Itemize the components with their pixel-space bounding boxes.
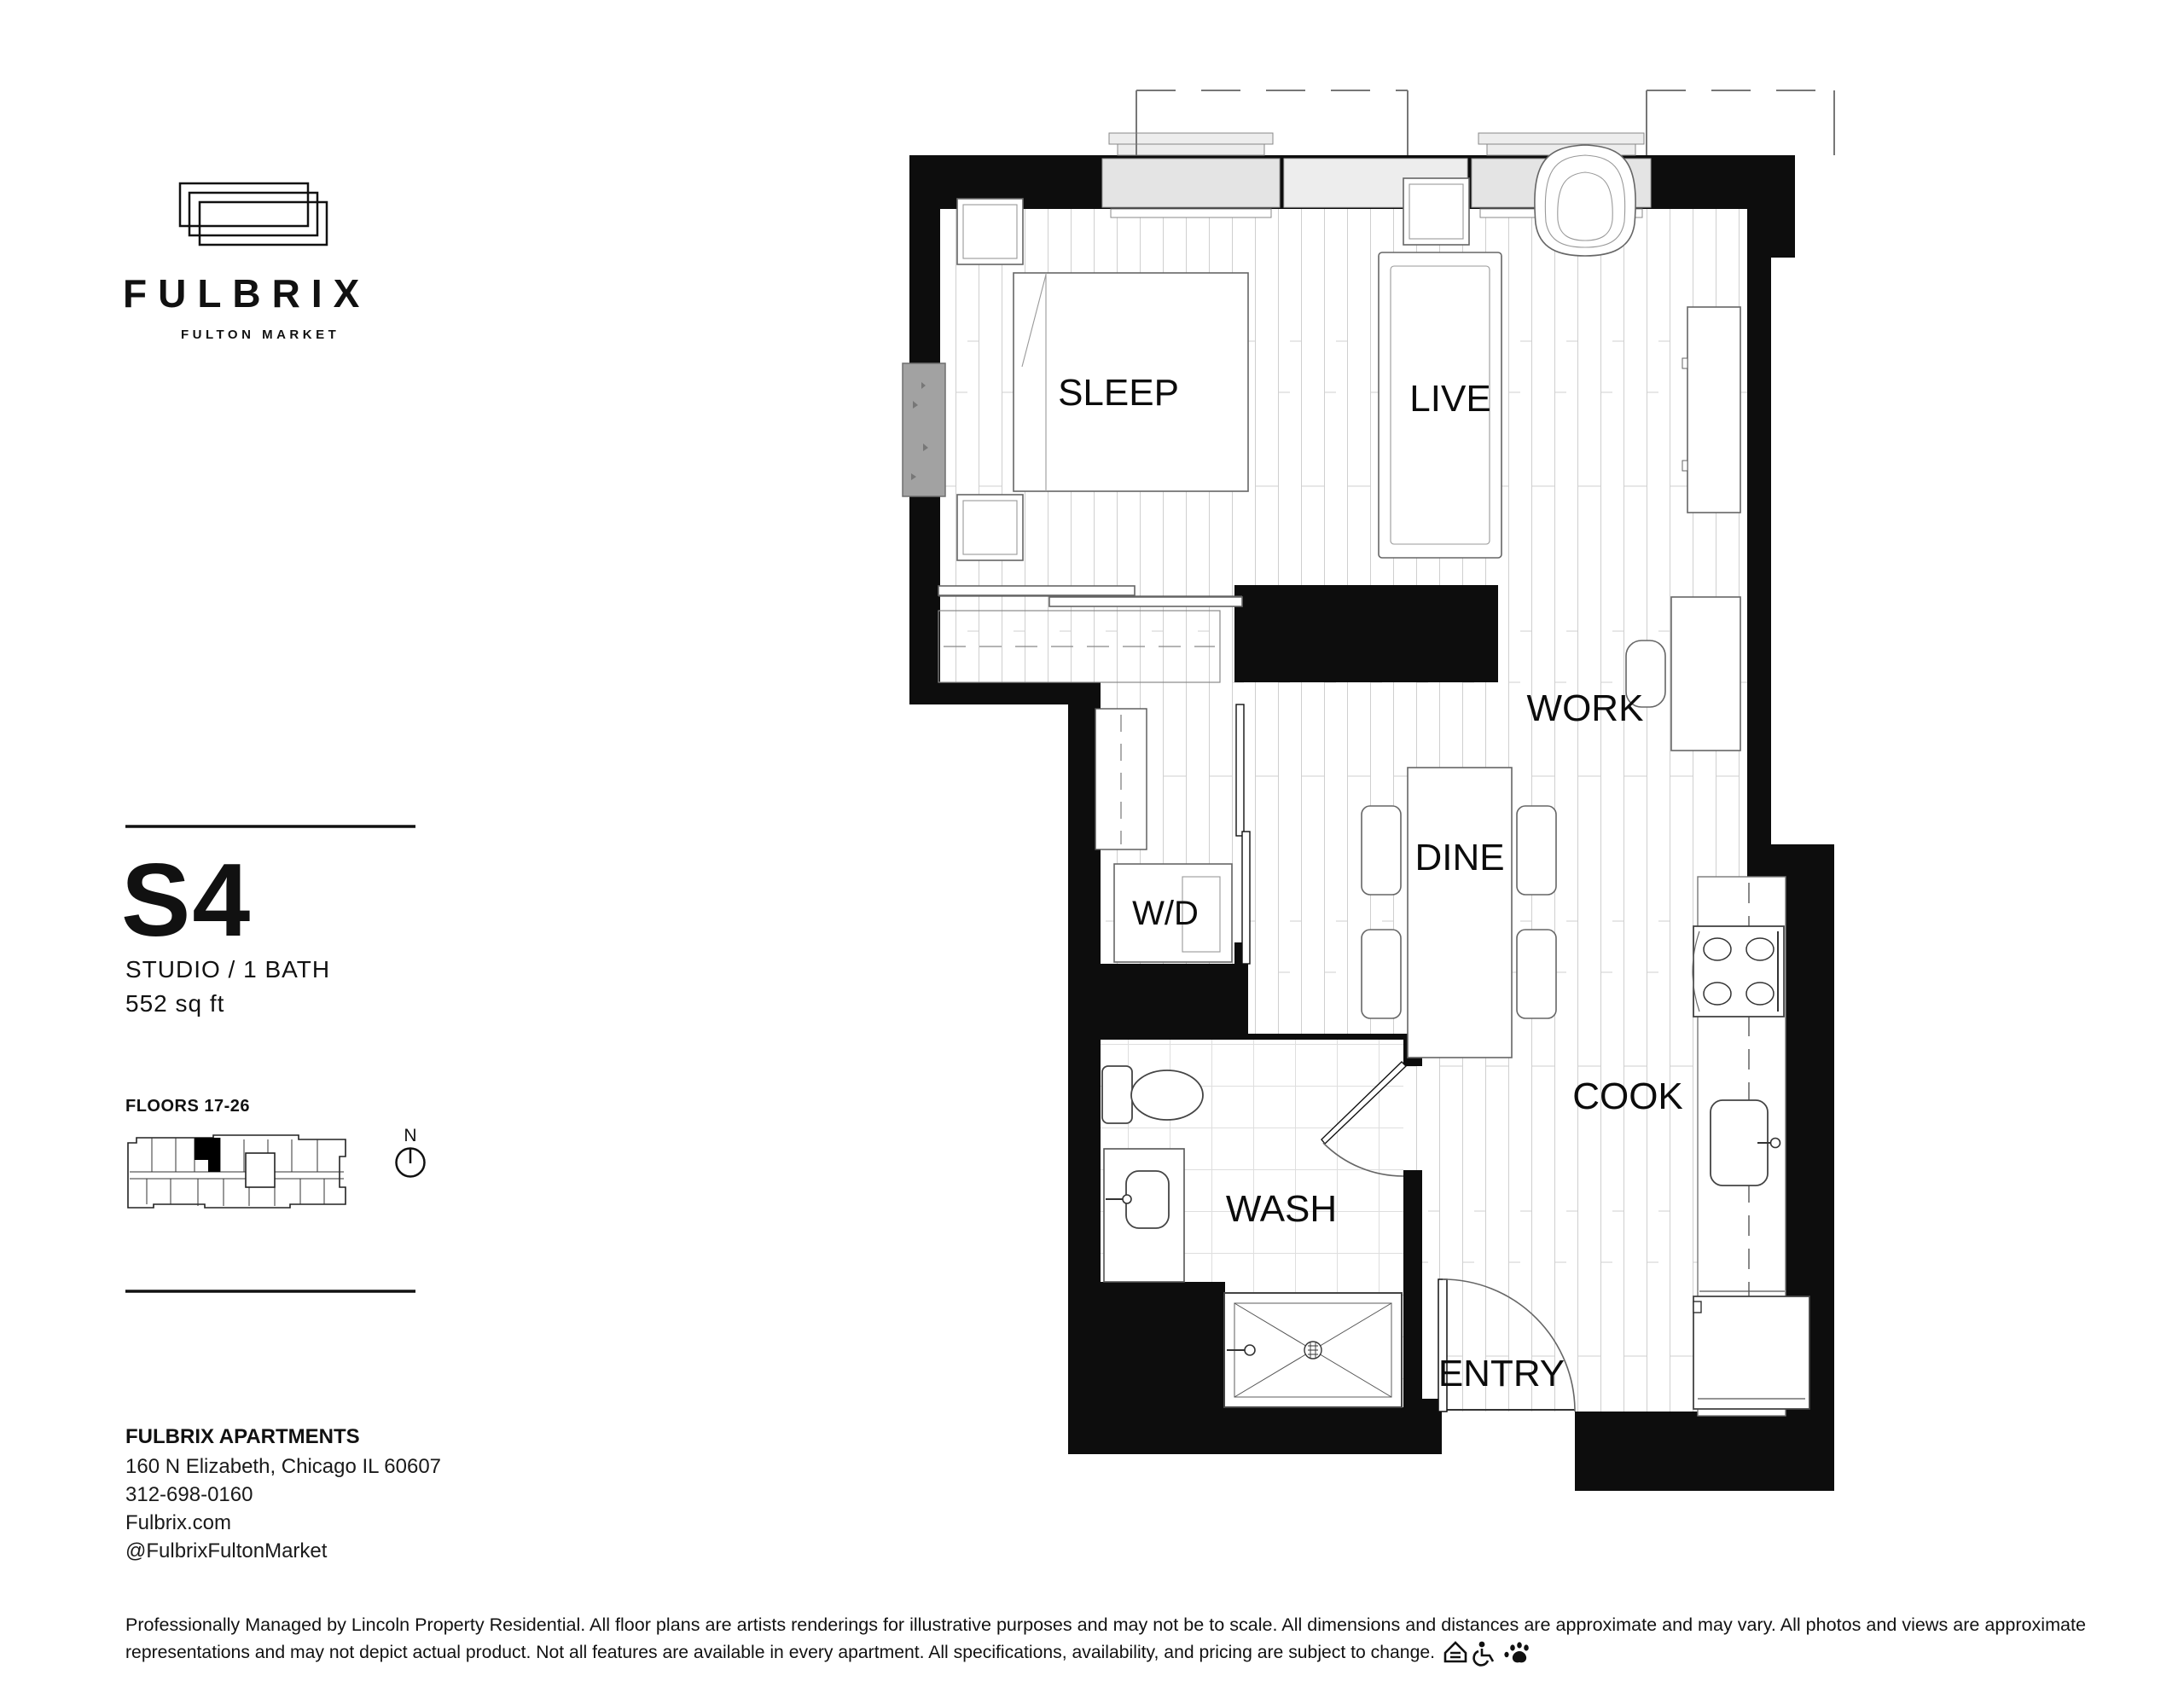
disclaimer: Professionally Managed by Lincoln Proper… [125,1615,2086,1665]
brand-logo: FULBRIX FULTON MARKET [123,183,370,342]
desk [1671,597,1740,751]
dining-chair [1517,930,1556,1018]
unit-code: S4 [121,842,252,958]
room-label-cook: COOK [1572,1075,1683,1117]
floor-plan: SLEEP LIVE [903,90,1882,1516]
unit-type: STUDIO / 1 BATH [125,956,330,983]
room-label-entry: ENTRY [1438,1353,1565,1394]
contact-block: FULBRIX APARTMENTS 160 N Elizabeth, Chic… [125,1425,441,1562]
room-label-wash: WASH [1226,1188,1337,1230]
accessibility-icon [1474,1642,1493,1666]
disclaimer-line2: representations and may not depict actua… [125,1643,1435,1662]
dining-chair [1362,806,1401,895]
brand-tagline: FULTON MARKET [181,328,340,342]
contact-phone: 312-698-0160 [125,1483,253,1506]
stove [1693,926,1784,1017]
room-label-live: LIVE [1409,378,1490,420]
unit-info: S4 STUDIO / 1 BATH 552 sq ft FLOORS 17-2… [121,826,415,1116]
contact-website: Fulbrix.com [125,1511,231,1534]
contact-address: 160 N Elizabeth, Chicago IL 60607 [125,1455,441,1478]
lounge-chair [1535,145,1635,256]
north-compass-icon: N [397,1126,425,1177]
nightstand-bottom [957,495,1023,560]
dining-chair [1517,806,1556,895]
laundry-closet: W/D [1114,864,1232,962]
refrigerator [1693,1291,1809,1409]
room-label-wd: W/D [1132,895,1199,932]
paw-icon [1504,1642,1528,1662]
unit-area: 552 sq ft [125,990,224,1017]
disclaimer-line1: Professionally Managed by Lincoln Proper… [125,1615,2086,1635]
toilet [1102,1066,1203,1123]
contact-social: @FulbrixFultonMarket [125,1539,328,1562]
compass-label: N [404,1126,416,1145]
stacked-bricks-logo-icon [180,183,327,245]
contact-name: FULBRIX APARTMENTS [125,1425,360,1448]
dining-chair [1362,930,1401,1018]
unit-floors: FLOORS 17-26 [125,1097,250,1116]
pocket-door-panel-1 [1236,704,1244,836]
media-console [1687,307,1740,513]
shower [1224,1293,1402,1407]
floorplan-sheet: FULBRIX FULTON MARKET S4 STUDIO / 1 BATH… [0,0,2184,1687]
vanity-sink [1104,1149,1184,1282]
pocket-door-panel-2 [1242,832,1250,964]
key-plan-unit-highlight [195,1138,220,1172]
brand-name: FULBRIX [123,271,370,316]
window-left [1102,159,1280,207]
side-table [1403,178,1469,245]
key-plan [128,1135,346,1208]
room-label-work: WORK [1527,687,1644,729]
room-label-dine: DINE [1414,837,1504,878]
concrete-column [903,363,945,496]
room-label-sleep: SLEEP [1058,372,1179,414]
nightstand-top [957,199,1023,264]
equal-housing-icon [1445,1643,1466,1661]
dining-table [1408,768,1512,1058]
